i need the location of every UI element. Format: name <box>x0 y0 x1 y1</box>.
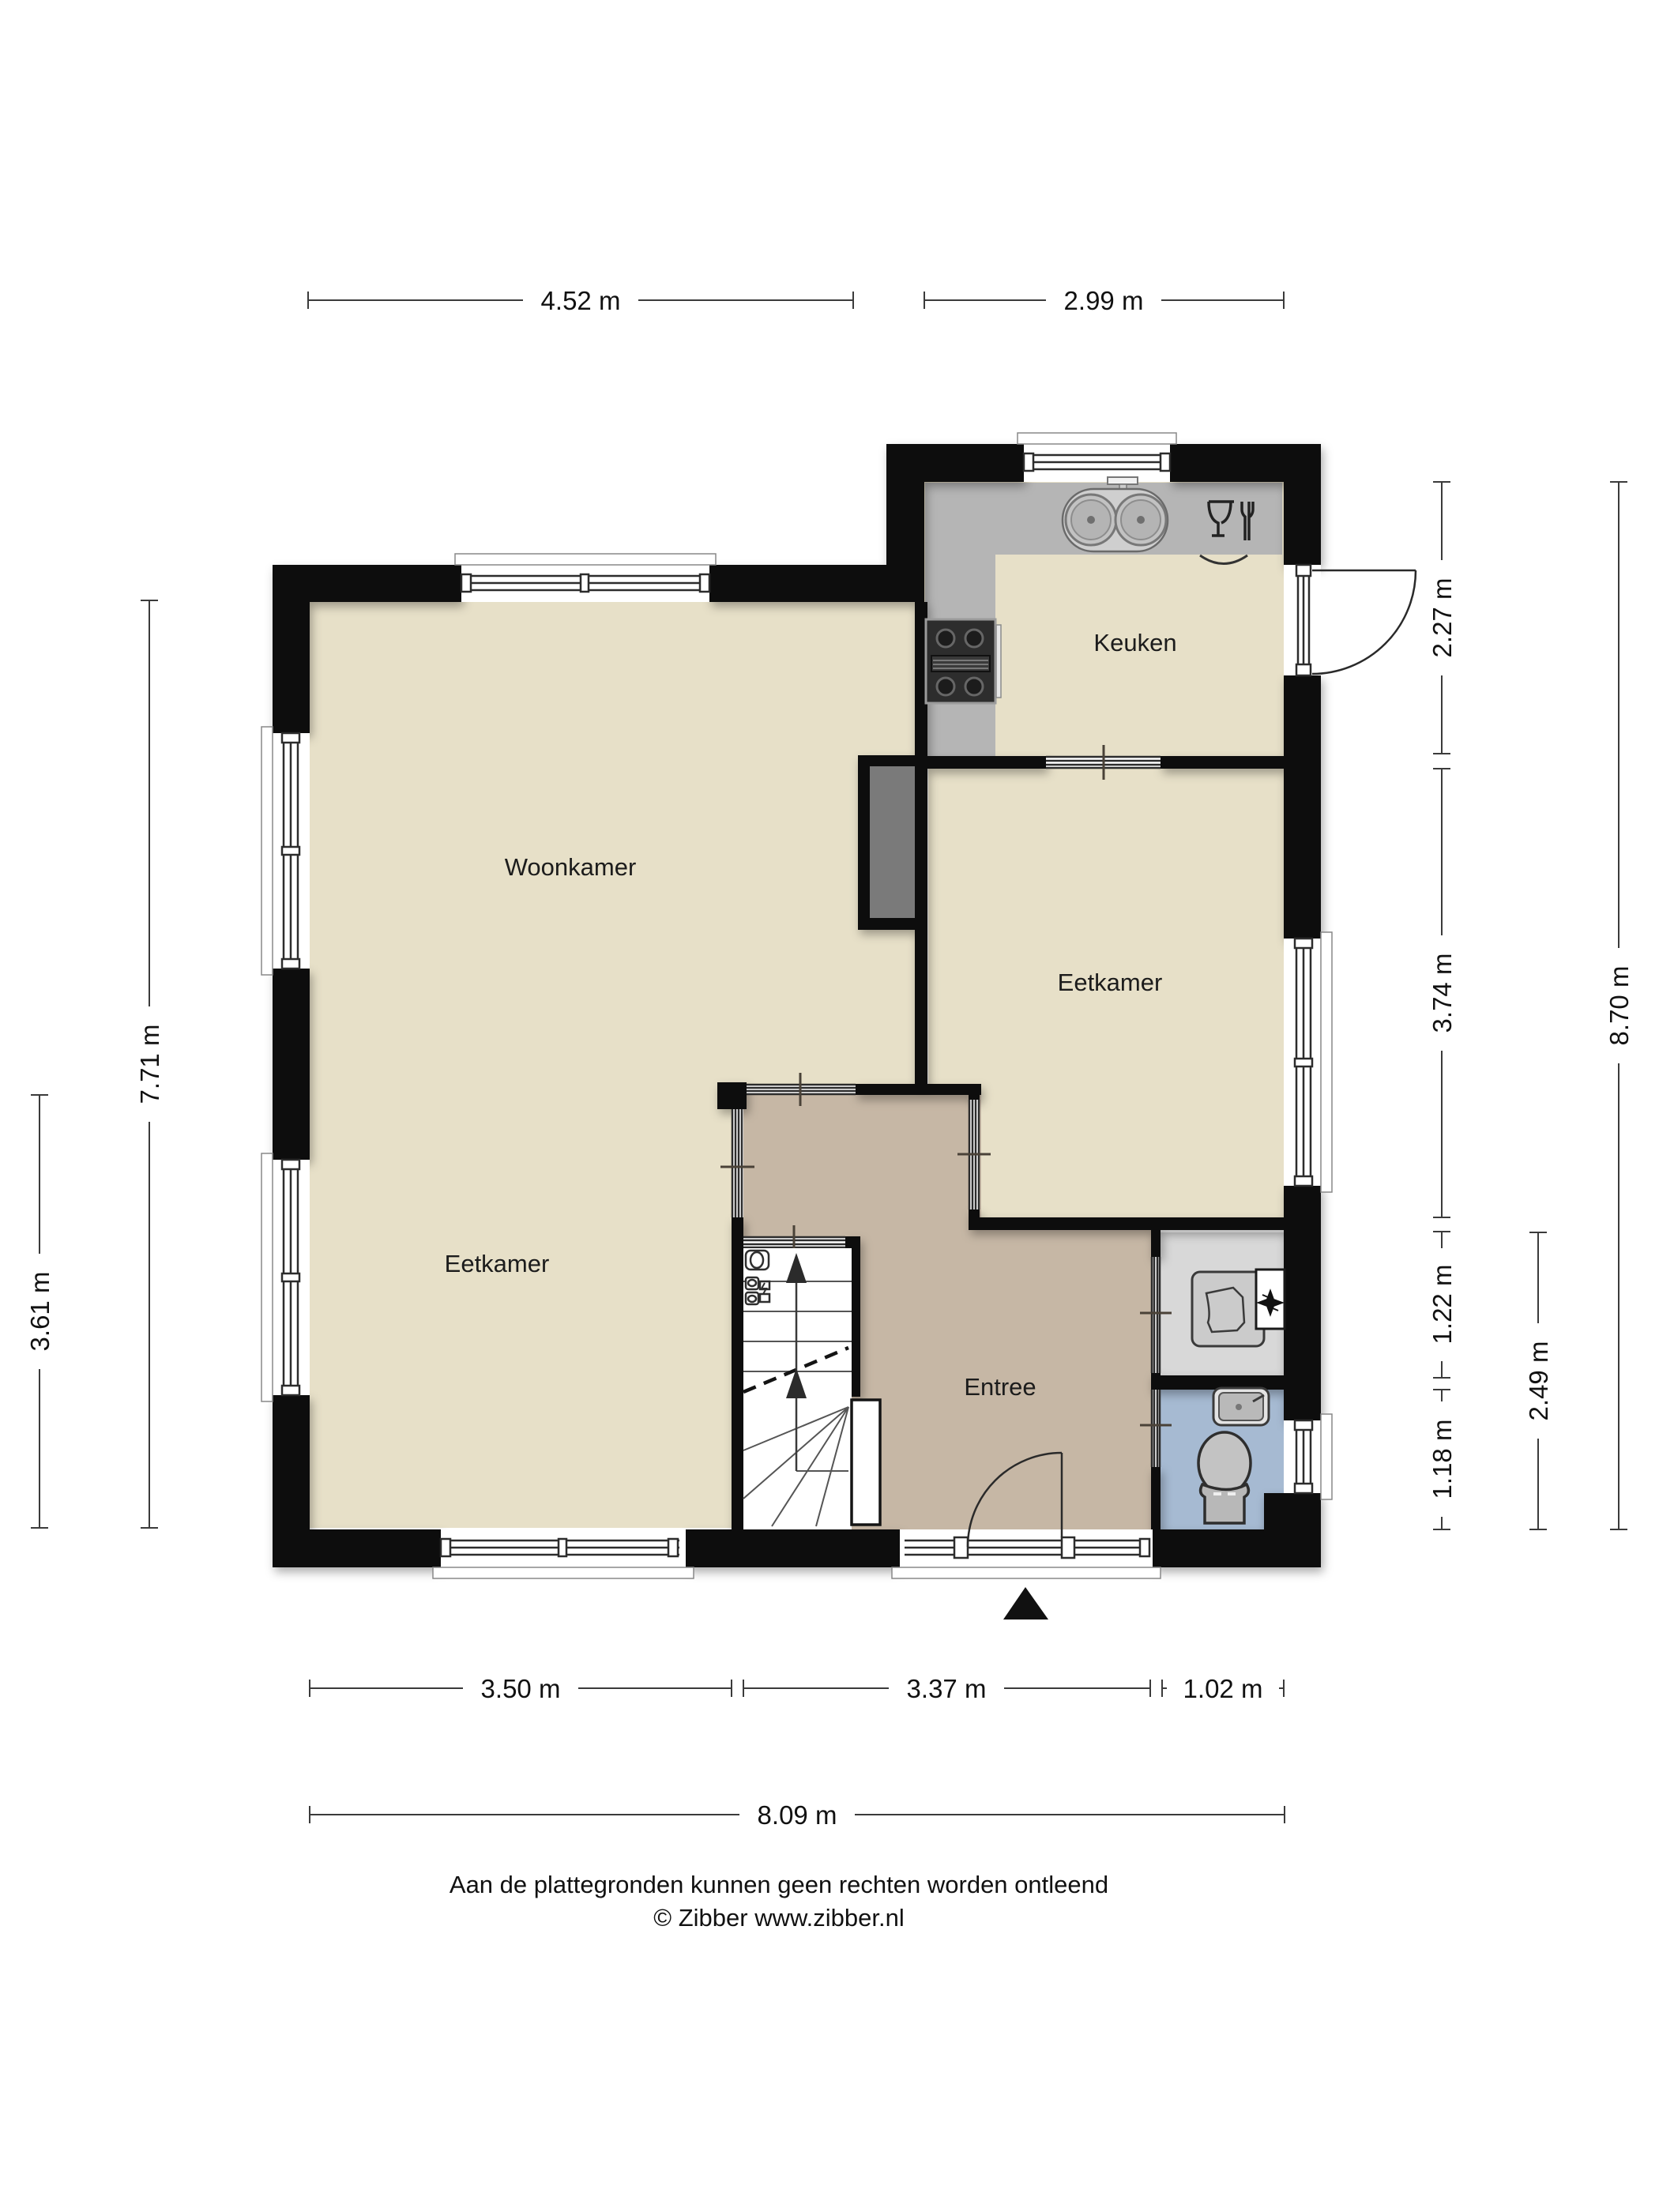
svg-text:8.09 m: 8.09 m <box>758 1800 837 1830</box>
svg-text:2.99 m: 2.99 m <box>1064 286 1144 315</box>
svg-text:Eetkamer: Eetkamer <box>1058 969 1163 996</box>
svg-text:Entree: Entree <box>964 1373 1036 1401</box>
svg-text:3.61 m: 3.61 m <box>25 1272 55 1352</box>
svg-text:1.02 m: 1.02 m <box>1183 1674 1263 1703</box>
svg-text:1.22 m: 1.22 m <box>1428 1265 1457 1345</box>
svg-text:2.49 m: 2.49 m <box>1524 1341 1553 1421</box>
svg-text:8.70 m: 8.70 m <box>1604 966 1634 1046</box>
svg-text:3.50 m: 3.50 m <box>481 1674 561 1703</box>
svg-text:Aan de plattegronden kunnen ge: Aan de plattegronden kunnen geen rechten… <box>450 1871 1108 1898</box>
svg-text:Keuken: Keuken <box>1093 629 1176 656</box>
svg-text:7.71 m: 7.71 m <box>135 1025 164 1104</box>
svg-text:1.18 m: 1.18 m <box>1428 1420 1457 1499</box>
svg-text:© Zibber www.zibber.nl: © Zibber www.zibber.nl <box>653 1904 904 1932</box>
svg-text:Woonkamer: Woonkamer <box>505 853 637 881</box>
svg-text:Eetkamer: Eetkamer <box>445 1250 550 1277</box>
svg-text:4.52 m: 4.52 m <box>541 286 621 315</box>
svg-text:3.37 m: 3.37 m <box>907 1674 987 1703</box>
svg-text:2.27 m: 2.27 m <box>1428 578 1457 658</box>
svg-text:3.74 m: 3.74 m <box>1428 954 1457 1033</box>
